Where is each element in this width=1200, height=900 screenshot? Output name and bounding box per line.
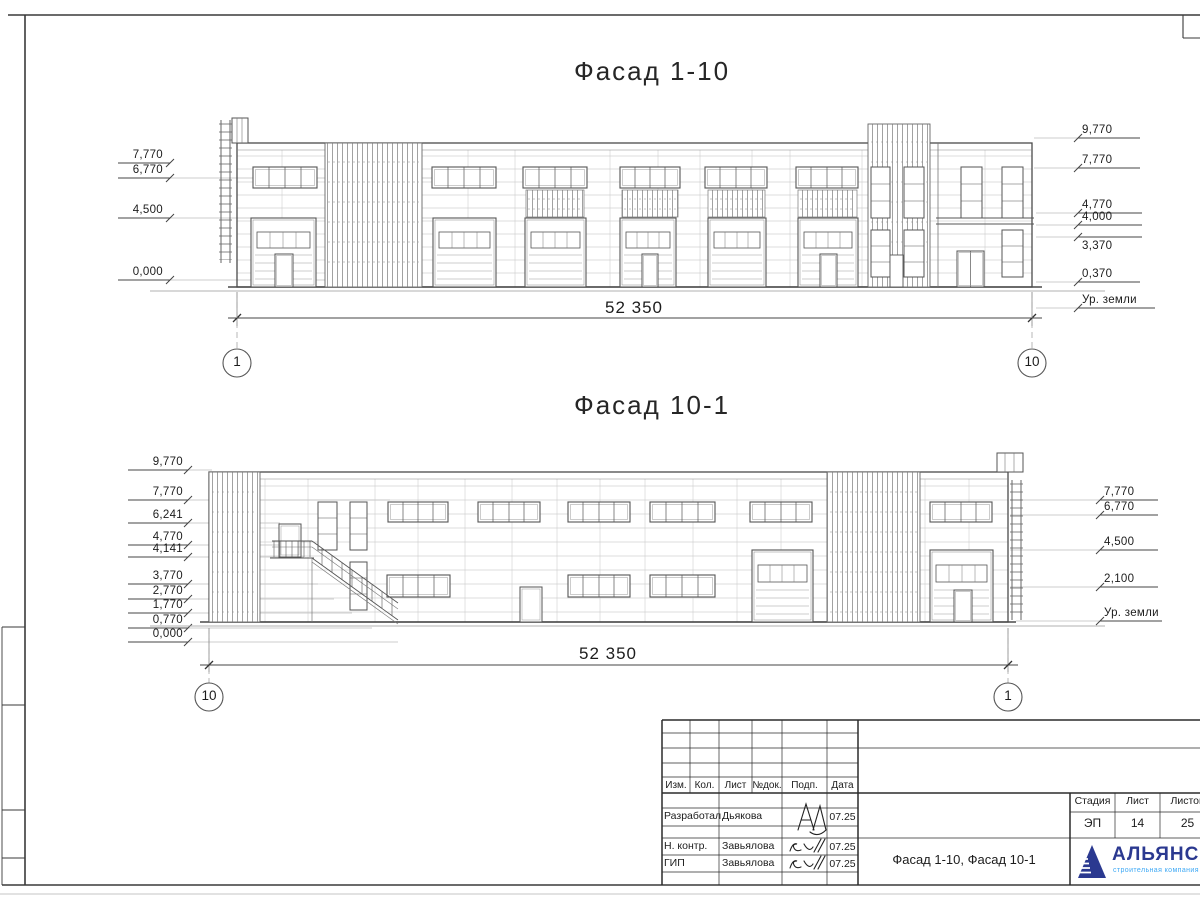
tb-col-list: Лист bbox=[719, 780, 752, 791]
grid-axis-bubble: 10 bbox=[1018, 355, 1046, 370]
tb-stage-header: Стадия bbox=[1070, 796, 1115, 808]
signature-dyakova bbox=[798, 804, 826, 835]
ground-level-label: Ур. земли bbox=[1082, 294, 1137, 307]
tb-sheet-header: Лист bbox=[1115, 796, 1160, 808]
tb-sheets-header: Листов bbox=[1160, 796, 1200, 808]
dimension-label: 52 350 bbox=[508, 645, 708, 664]
elevation-mark: 4,770 bbox=[121, 531, 183, 544]
tb-sheet-value: 14 bbox=[1115, 817, 1160, 830]
elevation-mark: 9,770 bbox=[121, 456, 183, 469]
elevation-mark: 2,100 bbox=[1104, 573, 1134, 586]
tb-role: Н. контр. bbox=[664, 841, 707, 853]
elevation-mark: 0,000 bbox=[121, 628, 183, 641]
ground-level-label: Ур. земли bbox=[1104, 607, 1159, 620]
elevation-mark: 7,770 bbox=[1104, 486, 1134, 499]
elevation-mark: 1,770 bbox=[121, 599, 183, 612]
dimension-label: 52 350 bbox=[534, 299, 734, 318]
elevation-mark: 7,770 bbox=[101, 149, 163, 162]
tb-sheets-value: 25 bbox=[1160, 817, 1200, 830]
facade-1-10-drawing bbox=[150, 118, 1105, 291]
tb-date: 07.25 bbox=[828, 812, 857, 824]
signature-strokes bbox=[790, 804, 826, 869]
tb-col-podp: Подп. bbox=[782, 780, 827, 791]
elevation-mark: 3,370 bbox=[1082, 240, 1112, 253]
elevation-mark: 6,241 bbox=[121, 509, 183, 522]
facade-10-1-drawing bbox=[150, 453, 1105, 626]
tb-role: Разработал bbox=[664, 811, 721, 823]
alliance-logo-subtitle: строительная компания bbox=[1113, 867, 1199, 875]
elevation-mark: 2,770 bbox=[121, 585, 183, 598]
facade2-title: Фасад 10-1 bbox=[502, 391, 802, 420]
tb-name: Завьялова bbox=[722, 858, 774, 870]
elevation-mark: 3,770 bbox=[121, 570, 183, 583]
elevation-mark: 0,000 bbox=[101, 266, 163, 279]
tb-col-kol: Кол. bbox=[690, 780, 719, 791]
grid-axis-bubble: 1 bbox=[223, 355, 251, 370]
drawing-sheet: { "sheet": { "facade1": { "title": "Фаса… bbox=[0, 0, 1200, 900]
elevation-mark: 4,500 bbox=[101, 204, 163, 217]
elevation-mark: 0,770 bbox=[121, 614, 183, 627]
alliance-logo-name: АЛЬЯНС bbox=[1112, 845, 1199, 866]
elevation-mark: 6,770 bbox=[1104, 501, 1134, 514]
elevation-mark: 7,770 bbox=[1082, 154, 1112, 167]
grid-axis-bubble: 1 bbox=[994, 689, 1022, 704]
signature-zavyalova-1 bbox=[790, 839, 825, 852]
tb-name: Дьякова bbox=[722, 811, 762, 823]
elevation-mark: 6,770 bbox=[101, 164, 163, 177]
tb-stage-value: ЭП bbox=[1070, 817, 1115, 830]
tb-date: 07.25 bbox=[828, 842, 857, 854]
tb-doc-title: Фасад 1-10, Фасад 10-1 bbox=[858, 853, 1070, 867]
facade2-dimension bbox=[195, 628, 1022, 711]
elevation-mark: 9,770 bbox=[1082, 124, 1112, 137]
facade1-title: Фасад 1-10 bbox=[502, 57, 802, 86]
elevation-mark: 4,770 bbox=[1082, 199, 1112, 212]
grid-axis-bubble: 10 bbox=[195, 689, 223, 704]
elevation-mark: 4,500 bbox=[1104, 536, 1134, 549]
alliance-logo-icon bbox=[1078, 845, 1106, 878]
tb-col-data: Дата bbox=[827, 780, 858, 791]
tb-date: 07.25 bbox=[828, 859, 857, 871]
tb-col-izm: Изм. bbox=[662, 780, 690, 791]
tb-col-ndok: №док. bbox=[752, 780, 782, 791]
elevation-mark: 4,141 bbox=[121, 543, 183, 556]
tb-name: Завьялова bbox=[722, 841, 774, 853]
elevation-mark: 4,000 bbox=[1082, 211, 1112, 224]
elevation-mark: 7,770 bbox=[121, 486, 183, 499]
elevation-mark: 0,370 bbox=[1082, 268, 1112, 281]
signature-zavyalova-2 bbox=[790, 856, 825, 869]
tb-role: ГИП bbox=[664, 858, 685, 870]
drawing-linework bbox=[0, 0, 1200, 900]
